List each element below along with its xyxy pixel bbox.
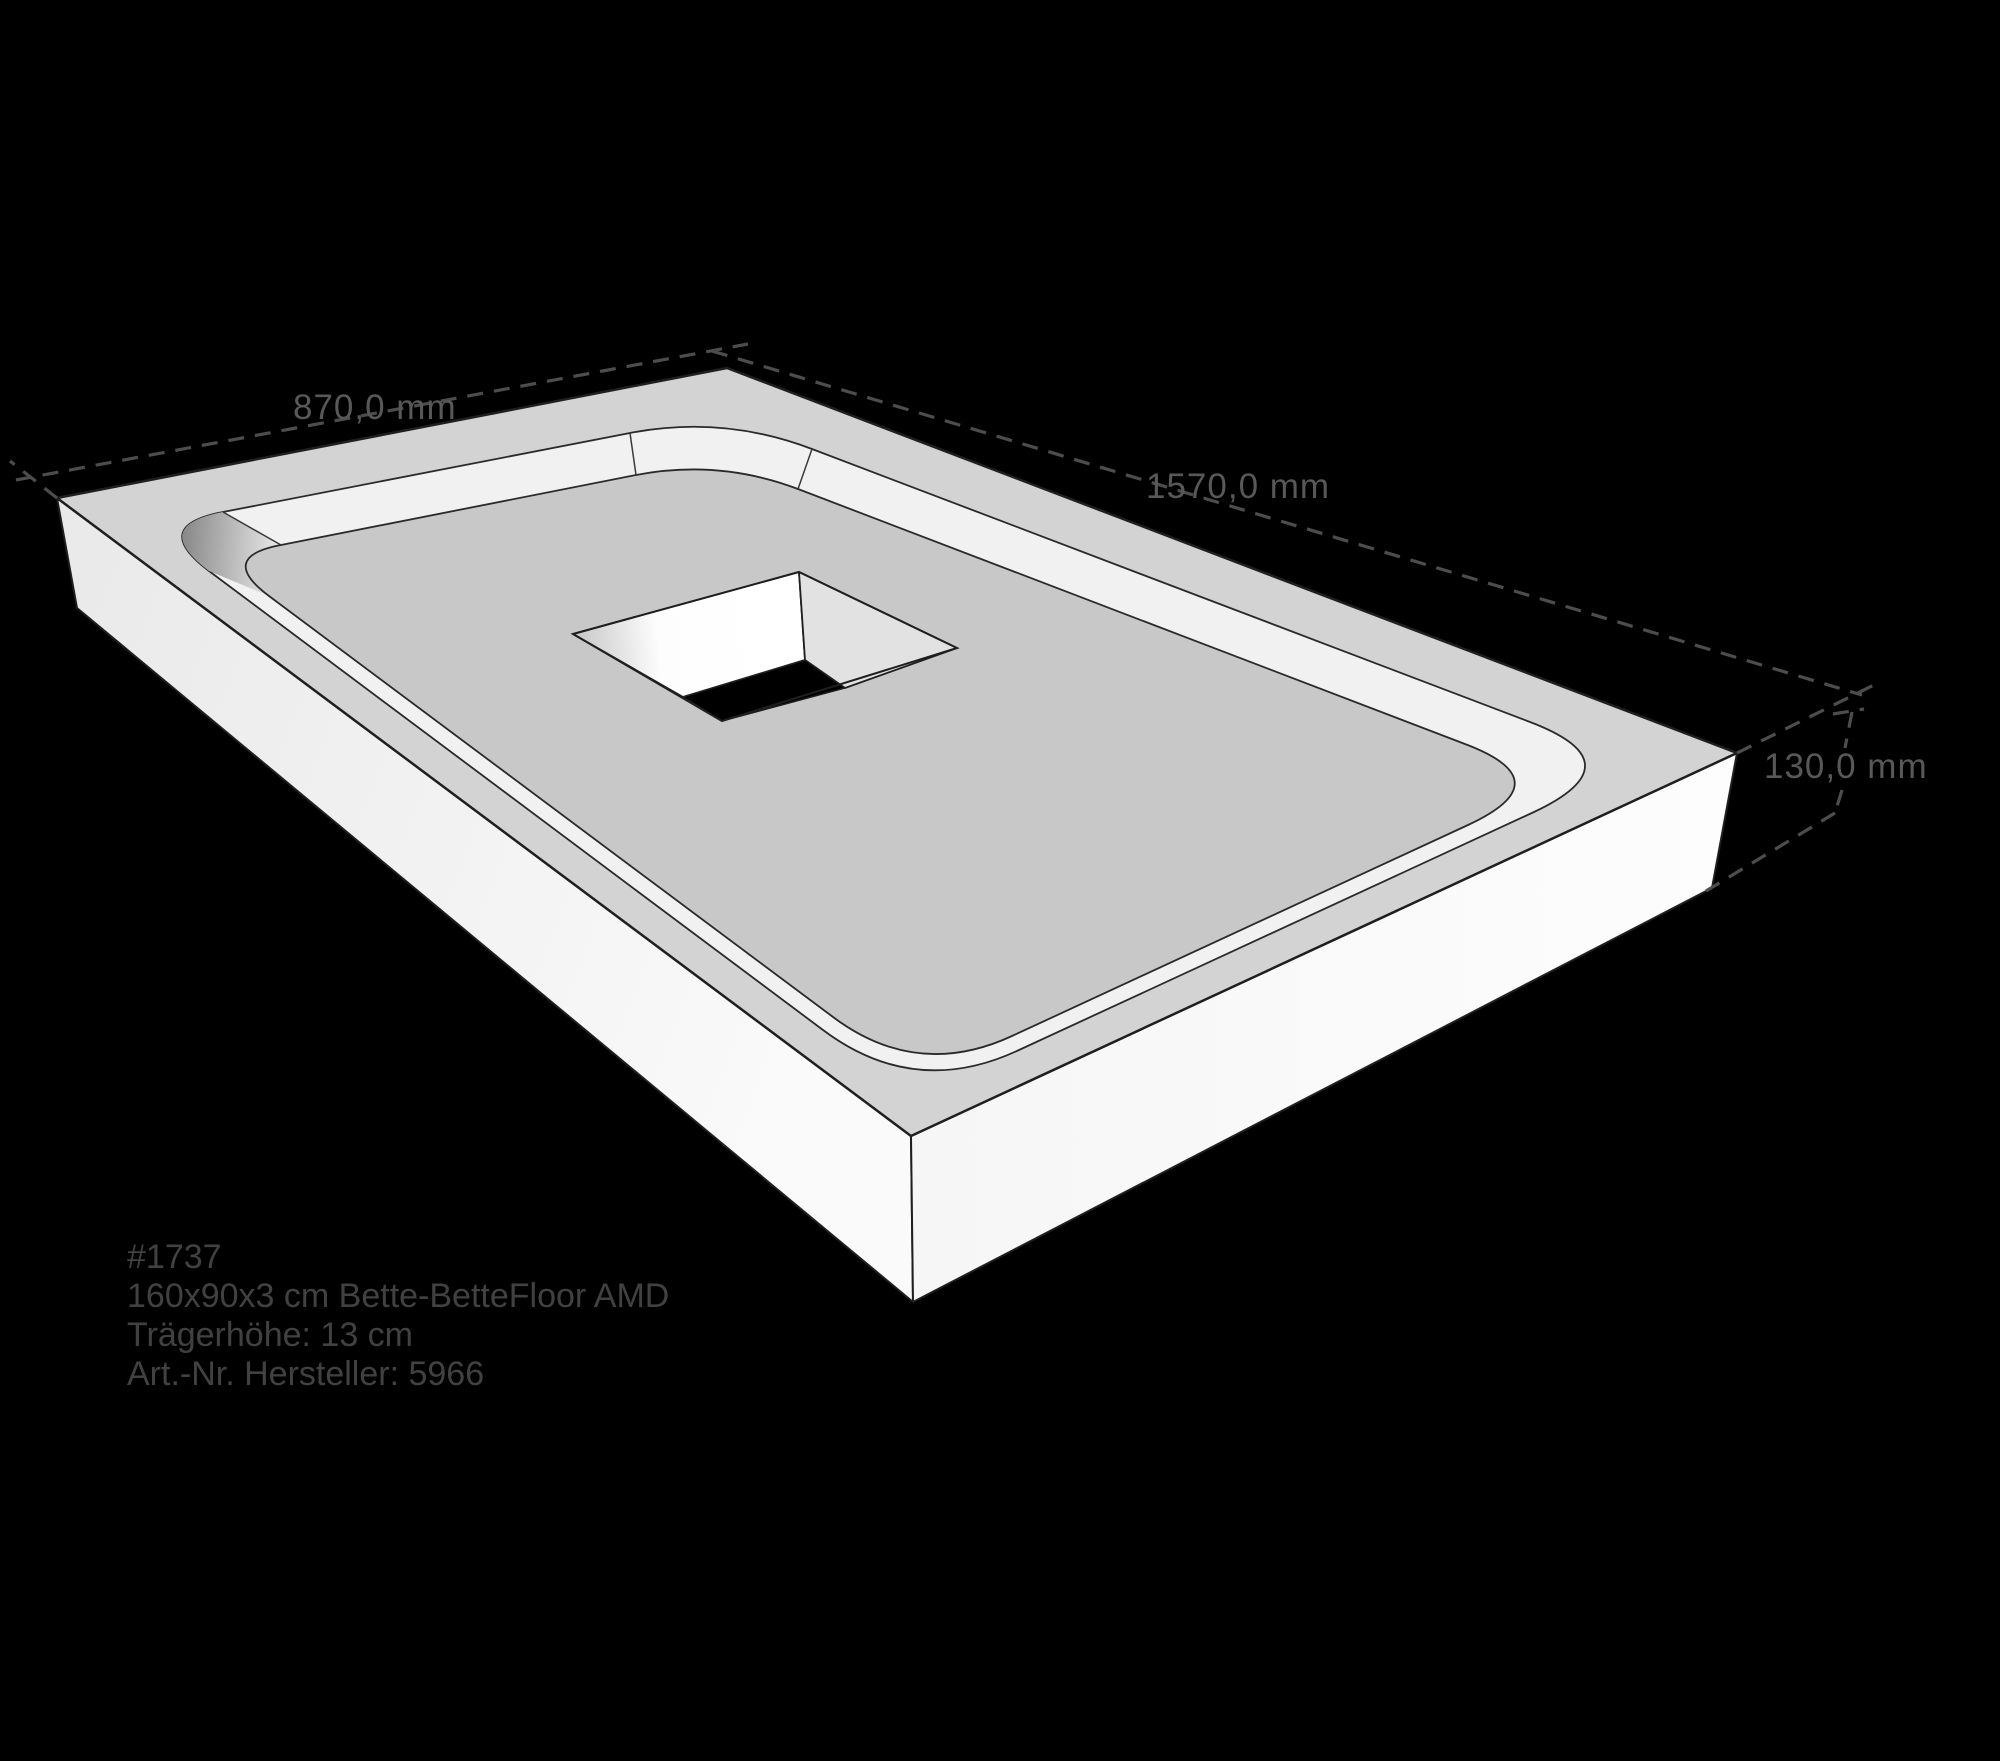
dim-line-height-lower	[1835, 790, 1842, 813]
dim-line-height-upper	[1845, 712, 1852, 748]
drawing-canvas: 870,0 mm 1570,0 mm 130,0 mm #1737 160x90…	[0, 0, 2000, 1761]
dimension-label-length: 1570,0 mm	[1146, 467, 1330, 507]
dimension-label-width: 870,0 mm	[293, 388, 457, 428]
product-id-text: #1737	[127, 1238, 669, 1277]
dimension-label-height: 130,0 mm	[1764, 747, 1928, 787]
product-name-text: 160x90x3 cm Bette-BetteFloor AMD	[127, 1277, 669, 1316]
tray-3d-drawing	[0, 0, 2000, 1761]
article-number-text: Art.-Nr. Hersteller: 5966	[127, 1355, 669, 1394]
product-info-block: #1737 160x90x3 cm Bette-BetteFloor AMD T…	[127, 1238, 669, 1394]
tray-body	[57, 368, 1737, 1302]
carrier-height-text: Trägerhöhe: 13 cm	[127, 1316, 669, 1355]
dim-tick-height-top	[1833, 709, 1864, 714]
dim-ext-bottom-corner	[1706, 813, 1835, 891]
dim-ext-right-corner	[1737, 685, 1874, 753]
